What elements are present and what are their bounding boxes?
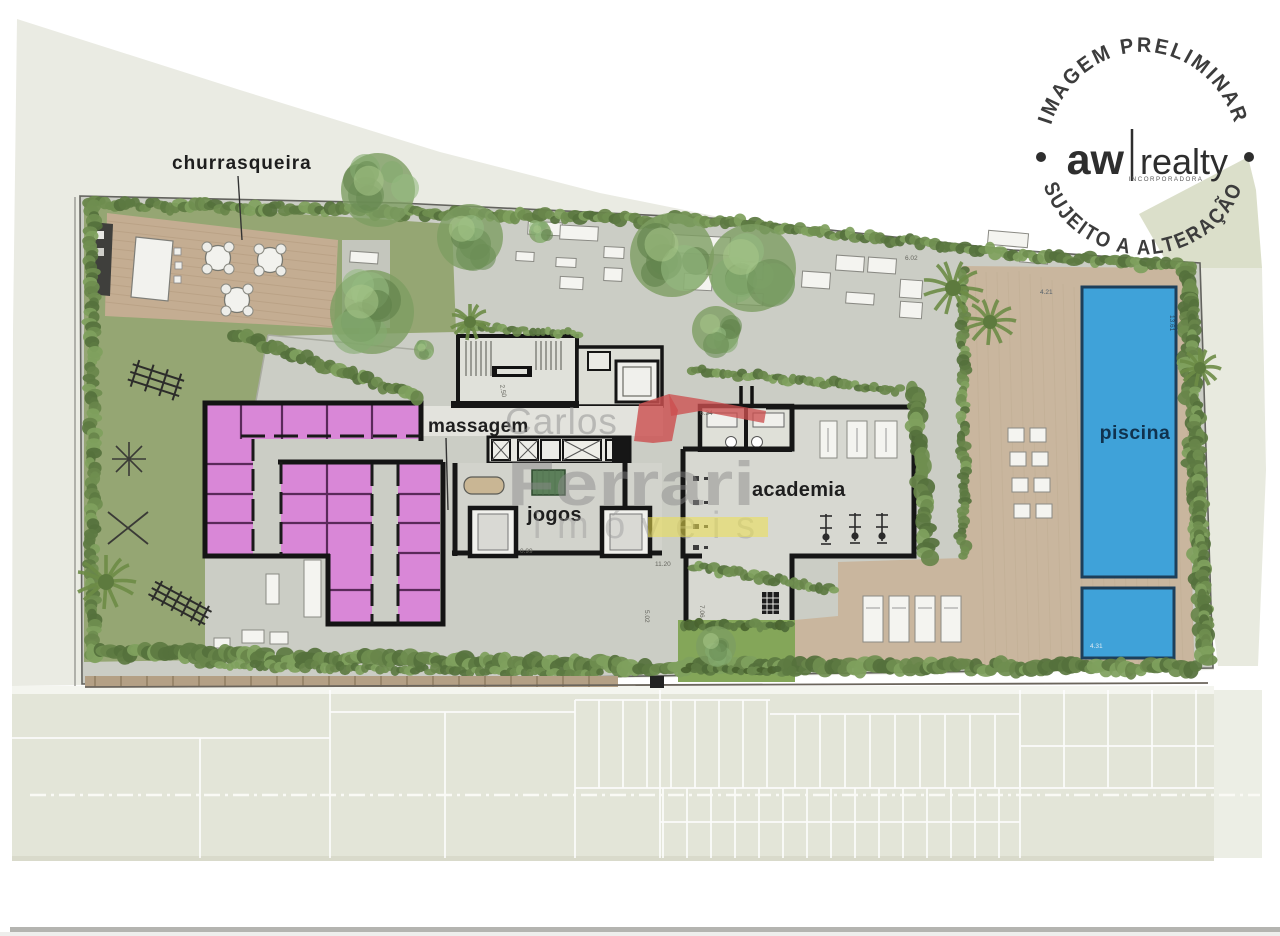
svg-text:5.02: 5.02	[643, 610, 650, 623]
svg-text:0.99: 0.99	[520, 548, 533, 555]
svg-text:INCORPORADORA: INCORPORADORA	[1129, 176, 1204, 183]
svg-text:13.61: 13.61	[1168, 315, 1175, 332]
svg-text:7.06: 7.06	[698, 605, 705, 618]
svg-text:aw: aw	[1067, 136, 1125, 184]
svg-text:churrasqueira: churrasqueira	[172, 153, 312, 174]
svg-text:6.02: 6.02	[905, 255, 918, 262]
svg-text:11.20: 11.20	[655, 561, 671, 568]
svg-text:academia: academia	[752, 479, 846, 501]
svg-text:piscina: piscina	[1100, 422, 1171, 444]
svg-text:4.31: 4.31	[1090, 643, 1103, 650]
svg-text:Carlos: Carlos	[505, 401, 618, 442]
svg-text:4.21: 4.21	[1040, 289, 1053, 296]
